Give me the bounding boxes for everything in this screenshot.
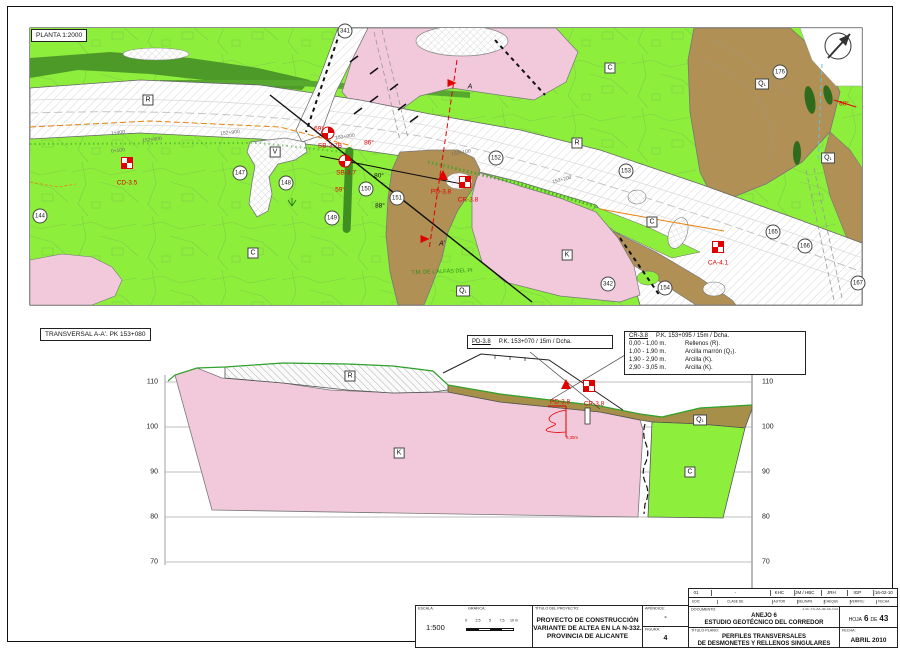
sheet-number: 6 <box>864 614 868 623</box>
date-value: ABRIL 2010 <box>840 637 897 644</box>
of-label: DE <box>870 617 877 623</box>
appendix-figure-cell: APÉNDICE: - FIGURA: 4 <box>642 606 688 647</box>
drawing-sheet: PLANTA 1:2000 TRANSVERSAL A-A'. PK 153+0… <box>0 0 900 648</box>
drawing-code: 3787-FD-AX-06-SE-G41 <box>802 608 838 611</box>
plan-title-cell: TÍTULO PLANO: PERFILES TRANSVERSALES DE … <box>689 628 839 648</box>
scale-value: 1:500 <box>426 623 445 632</box>
project-title-line: VARIANTE DE ALTEA EN LA N-332. <box>533 625 642 633</box>
document-cell: DOCUMENTO: 3787-FD-AX-06-SE-G41 ANEJO 6 … <box>689 607 839 627</box>
graphic-scalebar <box>466 628 514 631</box>
sheet-label: HOJA <box>849 617 862 623</box>
plan-title: PLANTA 1:2000 <box>31 29 87 42</box>
plan-title-line: PERFILES TRANSVERSALES <box>689 634 839 641</box>
document-line: ESTUDIO GEOTÉCNICO DEL CORREDOR <box>689 620 839 627</box>
project-title-cell: TÍTULO DEL PROYECTO: PROYECTO DE CONSTRU… <box>532 606 642 647</box>
document-label: DOCUMENTO: <box>691 608 716 612</box>
sheet-number-cell: HOJA 6 DE 43 <box>839 607 897 627</box>
revision-headers-row: EDICIÓNCLASE DE MODIFICACIÓN AUTORDELIN/… <box>689 598 897 607</box>
title-block-right: 01- KHCJM / HBC JRHIGP 16-02-10 EDICIÓNC… <box>688 588 898 648</box>
map-and-section-graphics <box>0 0 900 648</box>
appendix-value: - <box>643 614 688 621</box>
document-line: ANEJO 6 <box>689 613 839 620</box>
scale-cell: ESCALA: GRÁFICA: 1:500 0 2,5 5 7,5 10 m <box>416 606 532 647</box>
plan-title-line: DE DESMONETES Y RELLENOS SINGULARES <box>689 641 839 648</box>
project-title-label: TÍTULO DEL PROYECTO: <box>535 607 579 611</box>
figure-label: FIGURA: <box>645 628 660 632</box>
appendix-label: APÉNDICE: <box>645 607 665 611</box>
figure-number: 4 <box>643 635 688 642</box>
section-title: TRANSVERSAL A-A'. PK 153+080 <box>40 328 151 341</box>
project-title-line: PROYECTO DE CONSTRUCCIÓN <box>533 617 642 625</box>
plan-title-label: TÍTULO PLANO: <box>691 629 719 633</box>
date-label: FECHA: <box>842 629 856 633</box>
scale-label: ESCALA: <box>418 607 434 611</box>
date-cell: FECHA: ABRIL 2010 <box>839 628 897 648</box>
project-title-line: PROVINCIA DE ALICANTE <box>533 633 642 641</box>
graphic-scale-label: GRÁFICA: <box>468 607 486 611</box>
revision-values-row: 01- KHCJM / HBC JRHIGP 16-02-10 <box>689 589 897 598</box>
title-block-left: ESCALA: GRÁFICA: 1:500 0 2,5 5 7,5 10 m … <box>415 605 689 648</box>
sheet-total: 43 <box>879 614 888 623</box>
